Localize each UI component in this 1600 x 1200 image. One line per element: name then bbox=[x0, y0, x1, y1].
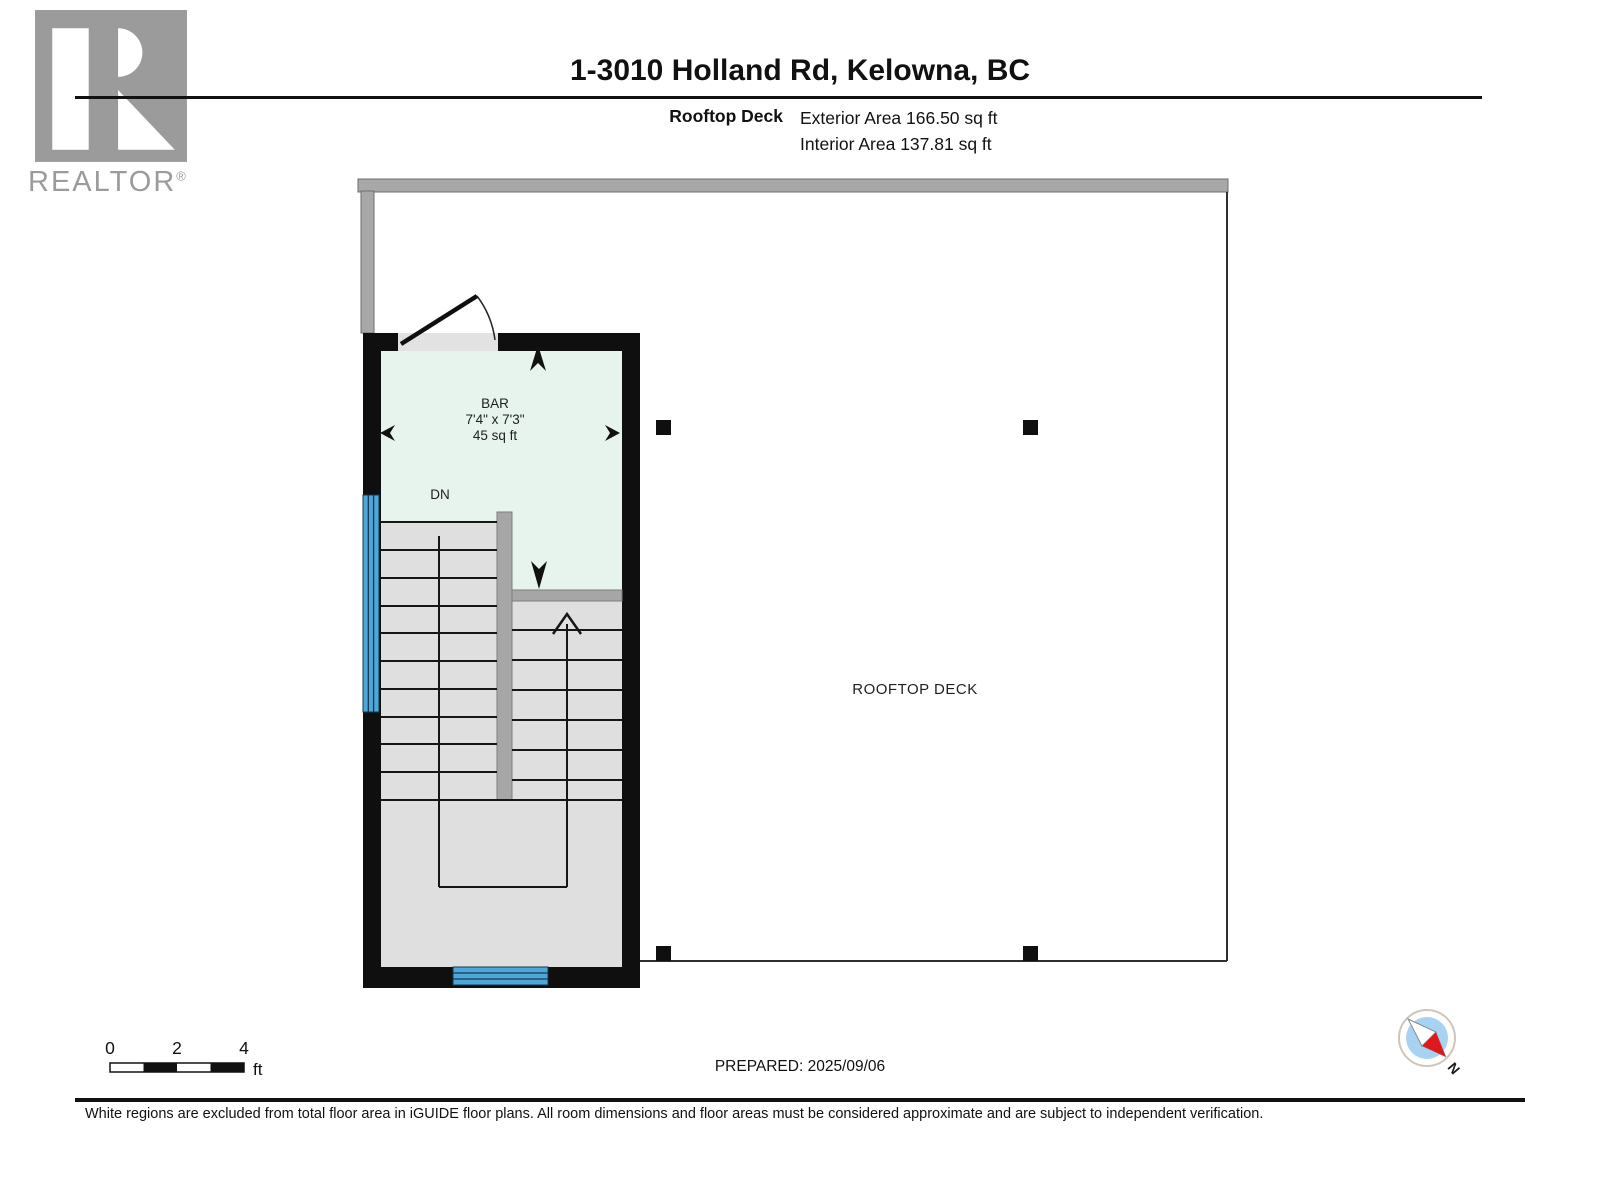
disclaimer-text: White regions are excluded from total fl… bbox=[85, 1106, 1525, 1122]
deck-top-railing bbox=[358, 179, 1228, 192]
stair-direction-label: DN bbox=[430, 487, 450, 502]
realtor-logo-text: REALTOR® bbox=[28, 166, 203, 199]
deck-post bbox=[656, 420, 671, 435]
page-title: 1-3010 Holland Rd, Kelowna, BC bbox=[0, 54, 1600, 88]
deck-label: ROOFTOP DECK bbox=[852, 681, 977, 698]
area-summary: Exterior Area 166.50 sq ft Interior Area… bbox=[800, 106, 997, 157]
registered-mark: ® bbox=[176, 168, 188, 183]
exterior-area-value: Exterior Area 166.50 sq ft bbox=[800, 106, 997, 132]
room-name-label: BAR bbox=[481, 396, 509, 411]
deck-left-railing bbox=[361, 191, 374, 333]
scale-tick-2: 2 bbox=[172, 1038, 182, 1058]
left-window bbox=[363, 495, 379, 712]
deck-post bbox=[656, 946, 671, 961]
scale-tick-0: 0 bbox=[105, 1038, 115, 1058]
title-divider bbox=[75, 96, 1482, 99]
floor-name-label: Rooftop Deck bbox=[669, 106, 783, 127]
room-area-label: 45 sq ft bbox=[473, 428, 518, 443]
floor-plan-page: REALTOR® 1-3010 Holland Rd, Kelowna, BC … bbox=[0, 0, 1600, 1200]
stair-divider-wall bbox=[497, 512, 512, 800]
scale-tick-4: 4 bbox=[239, 1038, 249, 1058]
footer-divider bbox=[75, 1098, 1525, 1102]
bottom-window bbox=[453, 967, 548, 985]
compass-icon: N bbox=[1393, 1003, 1469, 1081]
stair-side-wall bbox=[512, 590, 622, 601]
compass-north-label: N bbox=[1445, 1059, 1464, 1077]
floor-plan-drawing: BAR 7'4" x 7'3" 45 sq ft DN ROOFTOP DECK bbox=[340, 160, 1240, 1010]
deck-post bbox=[1023, 946, 1038, 961]
prepared-date: PREPARED: 2025/09/06 bbox=[0, 1058, 1600, 1076]
interior-area-value: Interior Area 137.81 sq ft bbox=[800, 132, 997, 158]
realtor-logo-icon bbox=[35, 10, 187, 167]
realtor-brand: REALTOR bbox=[28, 166, 176, 198]
realtor-logo-mark bbox=[35, 10, 187, 167]
room-dimensions-label: 7'4" x 7'3" bbox=[465, 412, 524, 427]
deck-post bbox=[1023, 420, 1038, 435]
